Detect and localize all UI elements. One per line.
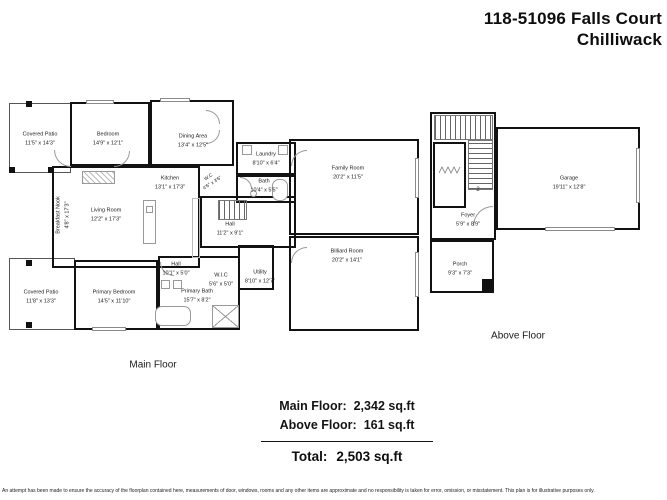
- vanity-sink-fixture: [161, 280, 170, 289]
- room-label-hall-lower: Hall 10'1" x 5'0": [162, 260, 189, 277]
- washer-fixture: [242, 145, 252, 155]
- sofa-fixture: [82, 171, 115, 184]
- disclaimer-text: An attempt has been made to ensure the a…: [2, 488, 665, 494]
- room-label-bedroom: Bedroom 14'9" x 12'1": [93, 130, 123, 147]
- room-label-living-room: Living Room 12'2" x 17'3": [91, 206, 122, 223]
- room-label-wic: W.I.C 5'6" x 5'0": [209, 271, 233, 288]
- main-floor-caption: Main Floor: [129, 360, 176, 371]
- room-label-dining-area: Dining Area 13'4" x 12'5": [178, 132, 208, 149]
- room-label-primary-bedroom: Primary Bedroom 14'5" x 11'10": [93, 288, 136, 305]
- total-area-label: Total:: [292, 449, 328, 464]
- room-label-covered-patio-top: Covered Patio 11'5" x 14'3": [23, 130, 58, 147]
- room-label-bath: Bath 10'4" x 5'5": [250, 177, 277, 194]
- island-cooktop-fixture: [146, 206, 153, 213]
- above-floor-area-row: Above Floor:161 sq.ft: [247, 416, 447, 435]
- hall-walls: [200, 196, 296, 248]
- room-label-breakfast-nook: Breakfast Nook 4'8" x 17'3": [54, 196, 71, 234]
- patio-post: [26, 260, 32, 266]
- window: [160, 98, 190, 102]
- page-title: 118-51096 Falls Court Chilliwack: [484, 8, 662, 50]
- primary-bathtub-fixture: [155, 306, 191, 326]
- main-stairs: [218, 200, 247, 220]
- room-label-laundry: Laundry 8'10" x 6'4": [252, 150, 279, 167]
- room-label-primary-bath: Primary Bath 15'7" x 8'2": [181, 287, 213, 304]
- room-label-garage: Garage 19'11" x 12'8": [553, 174, 586, 191]
- closet-rod-zigzag-icon: [439, 166, 461, 174]
- room-label-foyer: Foyer 5'9" x 8'9": [456, 211, 480, 228]
- room-label-kitchen: Kitchen 13'1" x 17'3": [155, 174, 185, 191]
- patio-post: [9, 167, 15, 173]
- room-label-hall: Hall 11'2" x 9'1": [217, 220, 244, 237]
- above-floor-area-label: Above Floor:: [280, 418, 357, 432]
- area-summary: Main Floor:2,342 sq.ft Above Floor:161 s…: [247, 397, 447, 467]
- above-floor-caption: Above Floor: [491, 331, 545, 342]
- room-label-wc: W.C 4'6" x 3'6": [198, 169, 224, 193]
- window: [86, 100, 114, 104]
- title-city: Chilliwack: [484, 29, 662, 50]
- above-closet-walls: [433, 142, 466, 208]
- stair-count-label: 2: [476, 187, 479, 193]
- above-floor-area-value: 161 sq.ft: [364, 418, 415, 432]
- porch-post: [482, 279, 494, 291]
- room-label-porch: Porch 9'3" x 7'3": [448, 260, 472, 277]
- title-address: 118-51096 Falls Court: [484, 8, 662, 29]
- room-label-family-room: Family Room 20'2" x 11'5": [332, 164, 364, 181]
- room-label-billiard-room: Billiard Room 20'2" x 14'1": [331, 247, 364, 264]
- above-stairs-run: [468, 140, 493, 190]
- above-stairs-upper: [434, 115, 493, 140]
- window: [415, 252, 419, 297]
- main-floor-area-label: Main Floor:: [279, 399, 346, 413]
- room-label-covered-patio-bottom: Covered Patio 11'8" x 13'3": [24, 288, 59, 305]
- window: [415, 158, 419, 198]
- total-area-value: 2,503 sq.ft: [336, 449, 402, 464]
- kitchen-counter-fixture: [192, 198, 200, 258]
- window: [636, 148, 640, 203]
- main-floor-area-value: 2,342 sq.ft: [354, 399, 415, 413]
- patio-post: [26, 101, 32, 107]
- total-area-row: Total:2,503 sq.ft: [247, 447, 447, 467]
- patio-post: [26, 322, 32, 328]
- floorplan-page: 118-51096 Falls Court Chilliwack: [0, 0, 667, 500]
- room-label-utility: Utility 8'10" x 12'7": [245, 268, 275, 285]
- garage-door-opening: [545, 227, 615, 231]
- window: [92, 327, 126, 331]
- main-floor-area-row: Main Floor:2,342 sq.ft: [247, 397, 447, 416]
- summary-divider: [261, 441, 433, 442]
- family-room-walls: [289, 139, 419, 235]
- shower-fixture: [212, 305, 239, 328]
